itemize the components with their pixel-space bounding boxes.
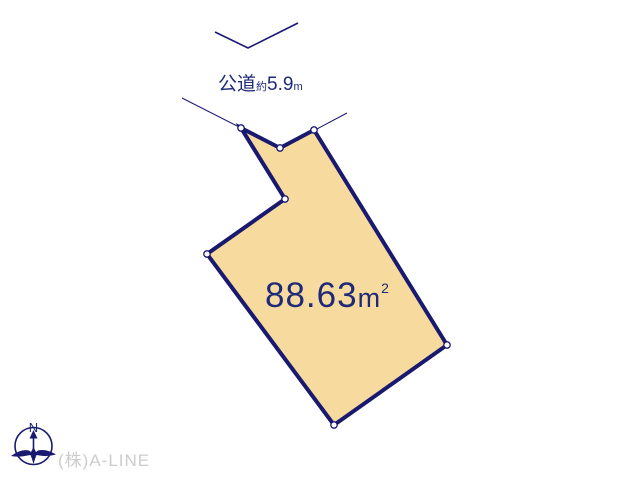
company-watermark: (株)A-LINE (58, 451, 150, 470)
site-plan-canvas: 公道約5.9m 88.63m2 N (株)A-LINE (0, 0, 640, 480)
parcel-area-value: 88.63 (265, 276, 358, 315)
road-direction-chevron-icon (215, 23, 298, 48)
road-width-value: 5.9 (267, 74, 293, 95)
north-compass: N (11, 420, 56, 465)
boundary-extension-line-right (315, 113, 347, 130)
vertex-marker (204, 251, 210, 257)
boundary-extension-line-left (182, 98, 241, 128)
vertex-marker (331, 422, 337, 428)
parcel-area-unit-exponent: 2 (381, 280, 390, 296)
road-width-unit: m (293, 81, 302, 93)
vertex-marker (238, 125, 244, 131)
vertex-marker (311, 127, 317, 133)
parcel-area-unit: m (358, 283, 382, 313)
vertex-marker (444, 342, 450, 348)
road-name-text: 公道 (218, 73, 256, 95)
site-plan-drawing: 公道約5.9m 88.63m2 N (株)A-LINE (0, 0, 640, 480)
road-label: 公道約5.9m (218, 73, 303, 95)
road-approx-text: 約 (256, 79, 267, 93)
vertex-marker (282, 196, 288, 202)
vertex-marker (277, 145, 283, 151)
bird-logo-icon (11, 447, 56, 464)
